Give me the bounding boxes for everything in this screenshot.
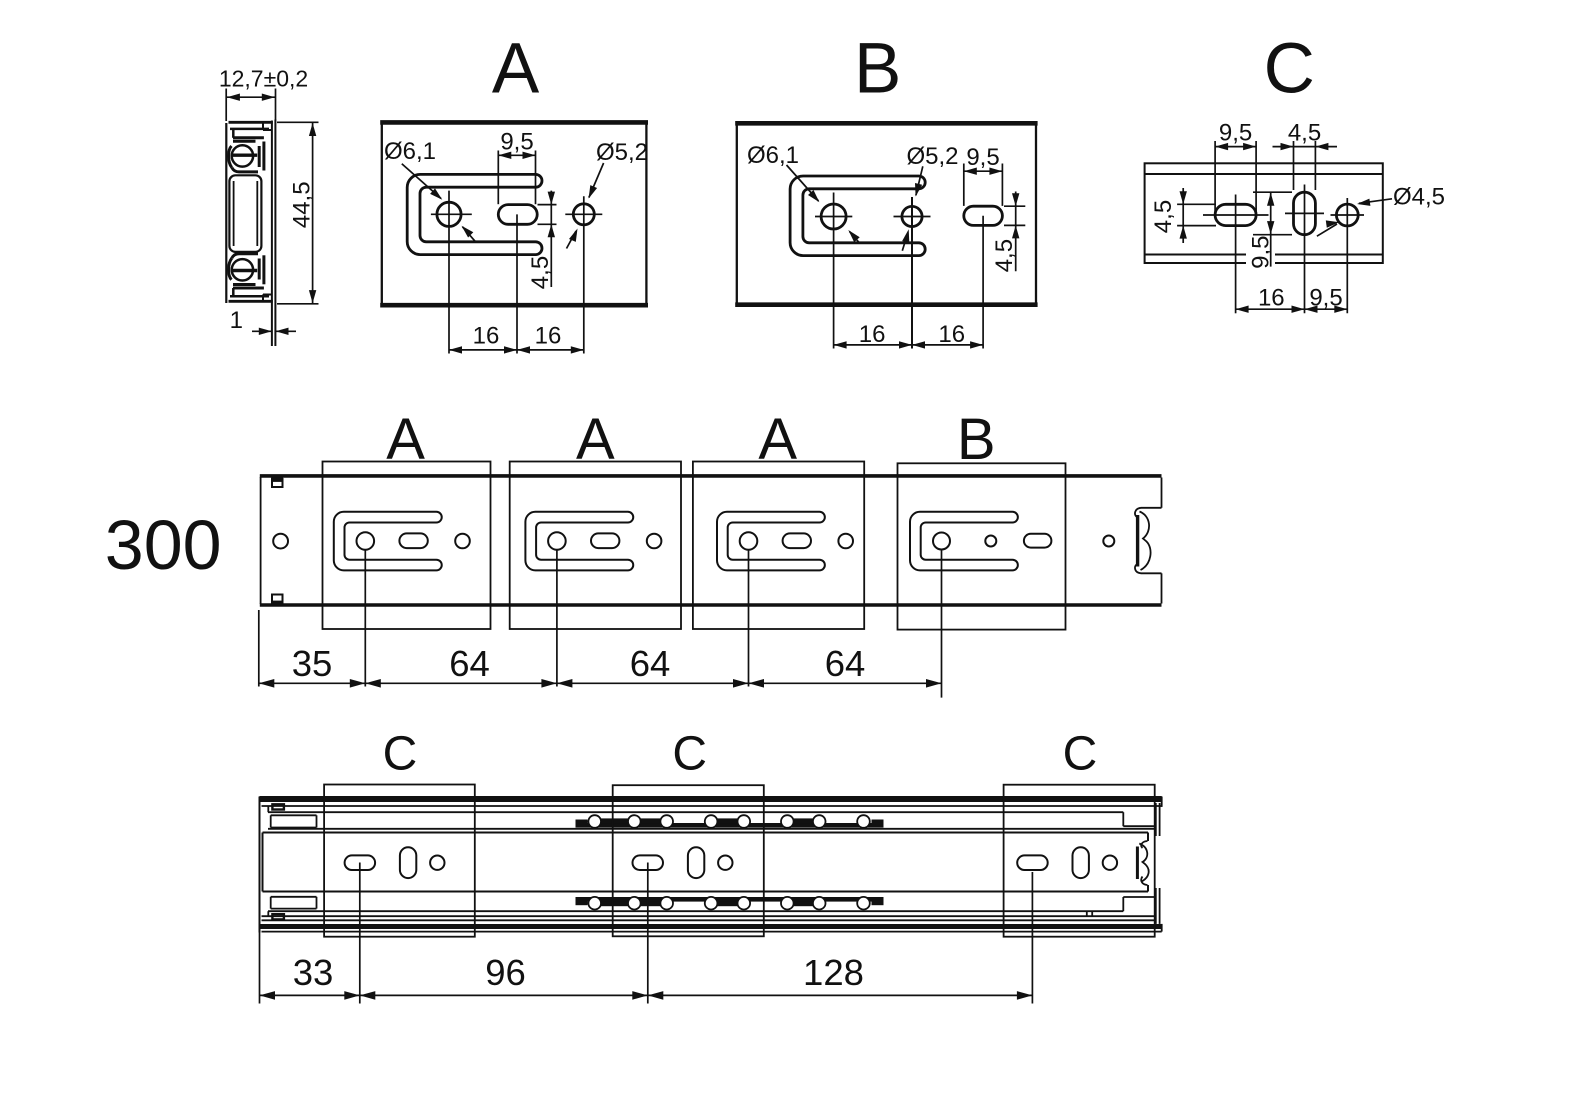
- svg-text:16: 16: [938, 321, 965, 348]
- svg-text:300: 300: [105, 506, 222, 584]
- svg-text:64: 64: [630, 643, 671, 684]
- svg-text:35: 35: [292, 643, 333, 684]
- svg-text:9,5: 9,5: [1309, 285, 1342, 312]
- svg-text:96: 96: [485, 952, 526, 993]
- svg-text:Ø4,5: Ø4,5: [1393, 184, 1445, 211]
- svg-text:64: 64: [449, 643, 490, 684]
- svg-text:4,5: 4,5: [527, 256, 554, 289]
- svg-text:4,5: 4,5: [1288, 120, 1321, 147]
- svg-text:9,5: 9,5: [966, 144, 999, 171]
- svg-text:9,5: 9,5: [1219, 120, 1252, 147]
- svg-text:1: 1: [230, 307, 243, 334]
- svg-text:12,7±0,2: 12,7±0,2: [219, 66, 308, 92]
- svg-text:44,5: 44,5: [289, 181, 316, 228]
- svg-text:16: 16: [859, 321, 886, 348]
- svg-text:Ø5,2: Ø5,2: [907, 143, 959, 170]
- svg-text:C: C: [1264, 30, 1315, 109]
- svg-text:4,5: 4,5: [1150, 200, 1177, 233]
- svg-text:B: B: [854, 30, 901, 109]
- svg-text:A: A: [386, 407, 425, 472]
- svg-text:A: A: [576, 407, 615, 472]
- svg-text:Ø6,1: Ø6,1: [384, 138, 436, 165]
- svg-text:Ø6,1: Ø6,1: [747, 142, 799, 169]
- svg-text:4,5: 4,5: [991, 239, 1018, 272]
- svg-text:16: 16: [535, 323, 562, 350]
- svg-text:128: 128: [803, 952, 864, 993]
- svg-text:Ø5,2: Ø5,2: [596, 139, 648, 166]
- svg-text:C: C: [672, 728, 707, 781]
- svg-text:C: C: [383, 728, 418, 781]
- svg-text:C: C: [1063, 728, 1098, 781]
- svg-text:33: 33: [293, 952, 334, 993]
- svg-text:B: B: [957, 407, 996, 472]
- svg-text:A: A: [492, 30, 540, 109]
- svg-text:64: 64: [825, 643, 866, 684]
- svg-text:16: 16: [473, 323, 500, 350]
- svg-text:9,5: 9,5: [500, 129, 533, 156]
- svg-text:A: A: [758, 407, 797, 472]
- svg-text:9,5: 9,5: [1248, 236, 1275, 269]
- svg-text:16: 16: [1258, 285, 1285, 312]
